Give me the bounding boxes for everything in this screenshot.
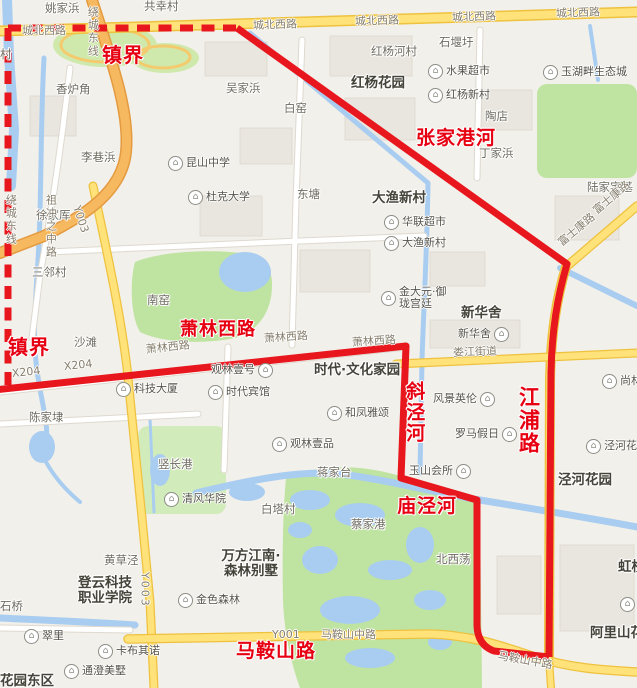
village-label: 黄草泾: [104, 554, 139, 567]
poi-marker[interactable]: ⌂观林壹品: [272, 437, 334, 452]
village-label: 蒋家台: [317, 466, 352, 479]
poi-marker[interactable]: ⌂玉湖畔生态城: [543, 65, 627, 80]
building-icon: ⌂: [384, 215, 399, 230]
building-icon: ⌂: [168, 156, 183, 171]
village-label: 共幸村: [144, 0, 179, 13]
building-icon: ⌂: [178, 593, 193, 608]
village-label: 村: [0, 48, 12, 61]
building-icon: ⌂: [258, 363, 273, 378]
poi-marker[interactable]: ⌂科技大厦: [116, 382, 178, 397]
poi-marker[interactable]: ⌂通澄美墅: [64, 664, 126, 679]
poi-label: 玉山会所: [409, 465, 453, 477]
village-label: 三邻村: [32, 266, 67, 279]
village-label: 红杨河村: [371, 45, 417, 58]
road-label: 绕城东线: [4, 194, 16, 246]
road-label: 富士康路: [556, 211, 598, 249]
poi-label: 尚林: [620, 375, 637, 387]
building-icon: ⌂: [494, 327, 509, 342]
poi-label: 风景英伦: [433, 393, 477, 405]
poi-label: 泾河花园: [604, 440, 637, 452]
poi-marker[interactable]: ⌂红杨新村: [428, 88, 490, 103]
village-label: 吴家浜: [226, 82, 261, 95]
village-label: 竖长港: [158, 458, 193, 471]
village-label: 北西荡: [436, 553, 471, 566]
boundary-label: 镇界: [8, 336, 50, 358]
road-label: 马鞍山中路: [497, 650, 553, 672]
poi-marker[interactable]: ⌂卡布其诺: [98, 644, 160, 659]
boundary-label: 萧林西路: [180, 320, 256, 340]
village-label: 蔡家港: [351, 518, 386, 531]
map-canvas[interactable]: 姚家浜共幸村村香炉角李巷浜吴家浜白窑石堰圩红杨河村陶店丁家浜陆家宅基东塘徐家厍三…: [0, 0, 637, 688]
road-label: 城北西路: [22, 25, 66, 37]
building-icon: ⌂: [188, 190, 203, 205]
poi-marker[interactable]: 玉山会所⌂: [409, 464, 471, 479]
village-label: 南窑: [147, 294, 170, 307]
road-label: 城北西路: [452, 10, 496, 24]
village-label: 白窑: [284, 102, 307, 115]
building-icon: ⌂: [586, 439, 601, 454]
poi-marker[interactable]: ⌂翠里: [24, 629, 64, 644]
poi-marker[interactable]: ⌂华联超市: [384, 215, 446, 230]
village-label: 沙滩: [74, 336, 97, 349]
poi-label: 水果超市: [446, 65, 490, 77]
road-label: X204: [63, 358, 93, 373]
poi-label: 科技大厦: [134, 383, 178, 395]
poi-label: 昆山中学: [186, 157, 230, 169]
area-label: 虹桥: [618, 560, 637, 575]
building-icon: ⌂: [208, 385, 223, 400]
village-label: 姚家浜: [45, 2, 80, 15]
road-label: X204: [11, 365, 41, 380]
poi-label: 杜克大学: [206, 191, 250, 203]
area-label: 红杨花园: [351, 76, 405, 91]
road-label: 绕城东线: [86, 6, 98, 58]
village-label: 香炉角: [56, 83, 91, 96]
building-icon: ⌂: [98, 644, 113, 659]
building-icon: ⌂: [480, 392, 495, 407]
building-icon: ⌂: [602, 374, 617, 389]
poi-label: 时代宾馆: [226, 386, 270, 398]
poi-marker[interactable]: ⌂和凤雅颂: [327, 406, 389, 421]
poi-label: 清风华院: [182, 493, 226, 505]
poi-marker[interactable]: ⌂杜克大学: [188, 190, 250, 205]
village-label: 陈家埭: [29, 411, 64, 424]
poi-marker[interactable]: 观林壹号⌂: [211, 363, 273, 378]
boundary-label: 张家港河: [416, 128, 496, 149]
poi-marker[interactable]: ⌂清风华院: [164, 492, 226, 507]
area-label: 万方江南·森林别墅: [215, 549, 287, 579]
poi-marker[interactable]: 新华舍⌂: [458, 327, 509, 342]
road-label: 萧林西路: [145, 339, 190, 356]
road-label: 城北西路: [556, 6, 600, 20]
building-icon: ⌂: [164, 492, 179, 507]
village-label: 李巷浜: [81, 151, 116, 164]
road-label: 马鞍山中路: [321, 629, 376, 641]
poi-marker[interactable]: ⌂金大元·御珑宫廷: [381, 286, 457, 310]
building-icon: ⌂: [327, 406, 342, 421]
poi-label: 翠里: [42, 630, 64, 642]
road-label: 萧林西路: [264, 330, 309, 345]
road-label: 娄江街道: [453, 345, 497, 359]
poi-label: 金大元·御珑宫廷: [399, 286, 457, 310]
poi-marker[interactable]: ⌂水果超市: [428, 64, 490, 79]
poi-label: 通澄美墅: [82, 665, 126, 677]
poi-marker[interactable]: ⌂时代宾馆: [208, 385, 270, 400]
area-label: 时代·文化家园: [314, 363, 400, 378]
poi-label: 罗马假日: [455, 428, 499, 440]
building-icon: ⌂: [620, 597, 635, 612]
building-icon: ⌂: [428, 64, 443, 79]
boundary-label: 庙泾河: [397, 496, 457, 517]
poi-marker[interactable]: ⌂泾河花园: [586, 439, 637, 454]
building-icon: ⌂: [456, 464, 471, 479]
poi-label: 玉湖畔生态城: [561, 66, 627, 78]
area-label: 花园东区: [0, 674, 54, 688]
poi-marker[interactable]: ⌂金色森林: [178, 593, 240, 608]
boundary-label: 斜泾河: [403, 381, 424, 444]
village-label: 陶店: [485, 110, 508, 123]
poi-label: 金色森林: [196, 594, 240, 606]
poi-label: 卡布其诺: [116, 645, 160, 657]
road-label: 萧林西路: [352, 334, 397, 349]
village-label: 石桥: [0, 600, 23, 613]
building-icon: ⌂: [502, 427, 517, 442]
poi-label: 新华舍: [458, 328, 491, 340]
boundary-label: 江浦路: [516, 386, 540, 455]
area-label: 泾河花园: [558, 473, 612, 488]
building-icon: ⌂: [272, 437, 287, 452]
building-icon: ⌂: [428, 88, 443, 103]
poi-label: 观林壹品: [290, 438, 334, 450]
area-label: 大渔新村: [372, 191, 426, 206]
area-label: 新华舍: [461, 306, 502, 321]
boundary-label: 镇界: [102, 44, 144, 66]
boundary-label: 马鞍山路: [236, 641, 316, 662]
village-label: 东塘: [297, 188, 320, 201]
village-label: 白塔村: [261, 503, 296, 516]
road-label: Y003: [138, 572, 150, 608]
poi-marker[interactable]: 罗马假日⌂: [455, 427, 517, 442]
map-labels: 姚家浜共幸村村香炉角李巷浜吴家浜白窑石堰圩红杨河村陶店丁家浜陆家宅基东塘徐家厍三…: [0, 0, 637, 688]
building-icon: ⌂: [381, 291, 396, 306]
poi-label: 观林壹号: [211, 364, 255, 376]
village-label: 石堰圩: [439, 36, 474, 49]
poi-label: 和凤雅颂: [345, 407, 389, 419]
poi-label: 华联超市: [402, 216, 446, 228]
poi-marker[interactable]: 风景英伦⌂: [433, 392, 495, 407]
building-icon: ⌂: [116, 382, 131, 397]
building-icon: ⌂: [64, 664, 79, 679]
poi-label: 红杨新村: [446, 89, 490, 101]
building-icon: ⌂: [543, 65, 558, 80]
road-label: 城北西路: [355, 14, 399, 28]
road-label: 祖冲之中路: [44, 194, 56, 259]
area-label: 登云科技职业学院: [76, 576, 134, 606]
poi-marker[interactable]: ⌂尚林: [602, 374, 637, 389]
road-label: Y003: [70, 204, 90, 234]
area-label: 阿里山花园: [590, 626, 637, 641]
poi-label: 大渔新村: [402, 237, 446, 249]
poi-marker[interactable]: ⌂昆山中学: [168, 156, 230, 171]
building-icon: ⌂: [384, 236, 399, 251]
building-icon: ⌂: [24, 629, 39, 644]
poi-marker[interactable]: ⌂: [620, 597, 635, 612]
poi-marker[interactable]: ⌂大渔新村: [384, 236, 446, 251]
road-label: 城北西路: [253, 18, 297, 32]
